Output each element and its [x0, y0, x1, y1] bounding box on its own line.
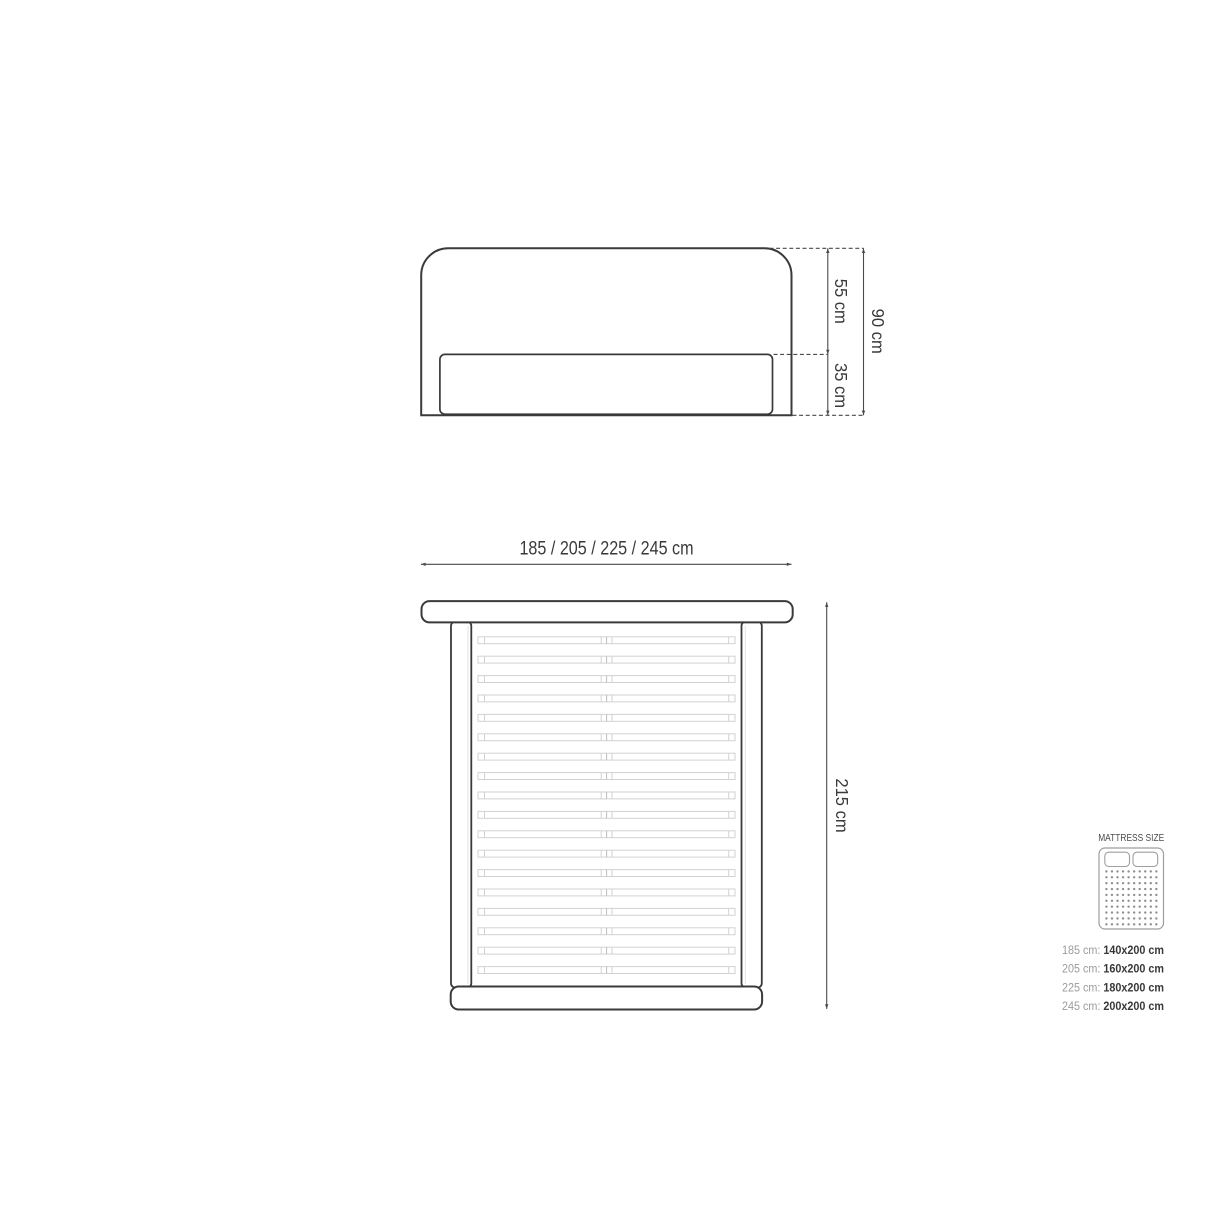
svg-text:185 / 205 / 225 / 245 cm: 185 / 205 / 225 / 245 cm — [519, 537, 693, 559]
svg-text:MATTRESS SIZE: MATTRESS SIZE — [1098, 832, 1164, 843]
svg-text:35 cm: 35 cm — [831, 363, 852, 408]
svg-text:225 cm: 180x200 cm: 225 cm: 180x200 cm — [1062, 982, 1164, 995]
svg-text:90 cm: 90 cm — [868, 309, 889, 354]
svg-text:215 cm: 215 cm — [832, 778, 853, 832]
svg-text:205 cm: 160x200 cm: 205 cm: 160x200 cm — [1062, 963, 1164, 976]
svg-text:55 cm: 55 cm — [831, 279, 852, 324]
svg-text:185 cm: 140x200 cm: 185 cm: 140x200 cm — [1062, 944, 1164, 957]
svg-text:245 cm: 200x200 cm: 245 cm: 200x200 cm — [1062, 1001, 1164, 1014]
